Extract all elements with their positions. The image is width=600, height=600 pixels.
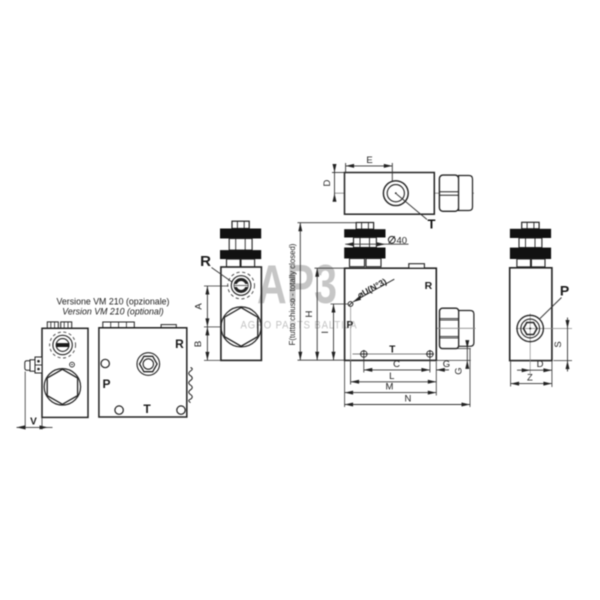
svg-text:E: E: [366, 155, 372, 166]
svg-text:P: P: [346, 320, 353, 331]
svg-text:T: T: [143, 402, 151, 416]
svg-text:Versione VM 210 (opzionale): Versione VM 210 (opzionale): [57, 297, 170, 307]
svg-text:D: D: [537, 359, 544, 370]
svg-text:L: L: [389, 371, 394, 382]
svg-text:P: P: [102, 377, 110, 391]
svg-text:40: 40: [397, 235, 408, 246]
svg-text:B: B: [193, 341, 204, 347]
svg-text:Version VM 210 (optional): Version VM 210 (optional): [62, 307, 163, 317]
svg-text:G: G: [443, 359, 450, 370]
svg-text:Z: Z: [527, 373, 533, 384]
svg-text:T: T: [428, 217, 436, 232]
svg-text:P: P: [560, 283, 569, 299]
svg-text:G: G: [454, 367, 465, 374]
svg-text:R: R: [175, 337, 184, 351]
svg-text:I: I: [320, 331, 331, 334]
svg-text:D: D: [322, 179, 333, 186]
svg-text:H: H: [304, 310, 315, 317]
svg-text:F(tutto chiuso - totally close: F(tutto chiuso - totally closed): [288, 243, 297, 345]
svg-text:V: V: [30, 417, 37, 428]
svg-text:M: M: [386, 382, 394, 393]
svg-text:T: T: [389, 344, 395, 355]
svg-text:R: R: [425, 280, 433, 292]
svg-text:R: R: [200, 253, 211, 270]
svg-text:N: N: [404, 393, 411, 404]
svg-text:AP3: AP3: [257, 253, 337, 315]
svg-text:C: C: [393, 359, 400, 370]
svg-text:S: S: [553, 341, 564, 347]
svg-text:A: A: [193, 303, 204, 310]
